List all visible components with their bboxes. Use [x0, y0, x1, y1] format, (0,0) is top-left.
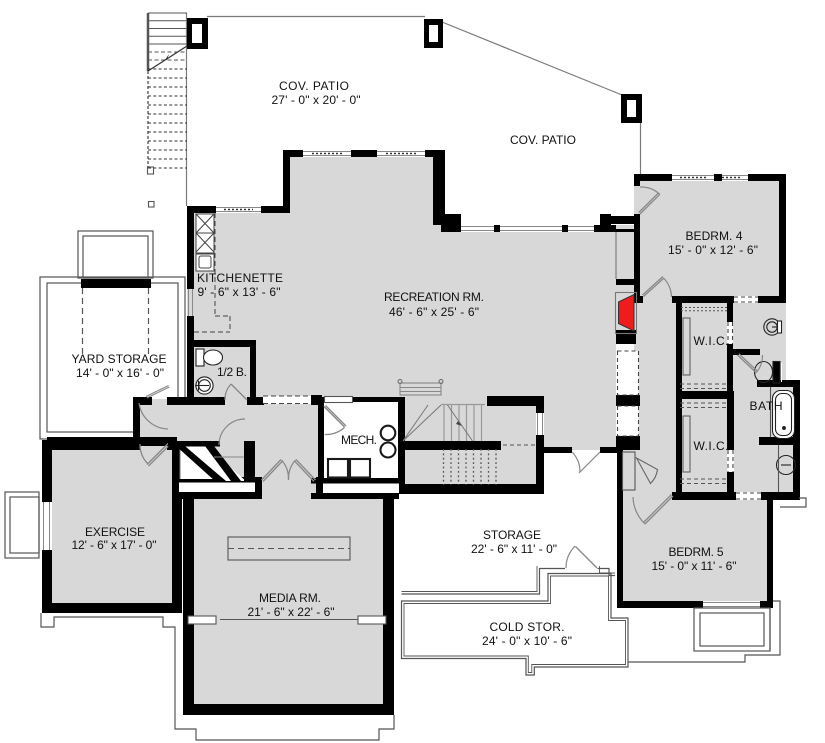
svg-text:21' - 6" x 22' - 6": 21' - 6" x 22' - 6" — [248, 605, 335, 619]
svg-text:27' - 0" x 20' - 0": 27' - 0" x 20' - 0" — [272, 93, 361, 107]
svg-text:W.I.C.: W.I.C. — [694, 439, 729, 453]
svg-text:22' - 6" x 11' - 0": 22' - 6" x 11' - 0" — [471, 542, 557, 556]
svg-text:MECH.: MECH. — [341, 433, 377, 447]
svg-text:BATH: BATH — [750, 399, 783, 413]
svg-text:9' - 6" x 13' - 6": 9' - 6" x 13' - 6" — [198, 285, 281, 299]
svg-text:BEDRM. 5: BEDRM. 5 — [669, 545, 724, 559]
svg-text:EXERCISE: EXERCISE — [85, 525, 145, 539]
svg-text:1/2 B.: 1/2 B. — [217, 365, 247, 379]
svg-text:14' - 0" x 16' - 0": 14' - 0" x 16' - 0" — [76, 366, 164, 380]
svg-text:24' - 0" x 10' - 6": 24' - 0" x 10' - 6" — [482, 634, 572, 648]
svg-text:15' - 0" x 11' - 6": 15' - 0" x 11' - 6" — [652, 559, 737, 573]
svg-text:COV. PATIO: COV. PATIO — [510, 133, 576, 147]
svg-text:W.I.C.: W.I.C. — [694, 334, 729, 348]
svg-text:12' - 6" x 17' - 0": 12' - 6" x 17' - 0" — [72, 538, 157, 552]
svg-text:MEDIA RM.: MEDIA RM. — [259, 591, 321, 605]
svg-text:COV. PATIO: COV. PATIO — [279, 79, 349, 93]
svg-text:YARD STORAGE: YARD STORAGE — [72, 352, 167, 366]
svg-text:RECREATION RM.: RECREATION RM. — [384, 290, 484, 304]
svg-text:COLD STOR.: COLD STOR. — [490, 620, 565, 634]
svg-text:46' - 6" x 25' - 6": 46' - 6" x 25' - 6" — [389, 305, 479, 319]
svg-text:BEDRM. 4: BEDRM. 4 — [686, 229, 743, 243]
svg-text:STORAGE: STORAGE — [483, 528, 541, 542]
svg-text:15' - 0" x 12' - 6": 15' - 0" x 12' - 6" — [668, 243, 758, 257]
svg-text:KITCHENETTE: KITCHENETTE — [197, 271, 283, 285]
